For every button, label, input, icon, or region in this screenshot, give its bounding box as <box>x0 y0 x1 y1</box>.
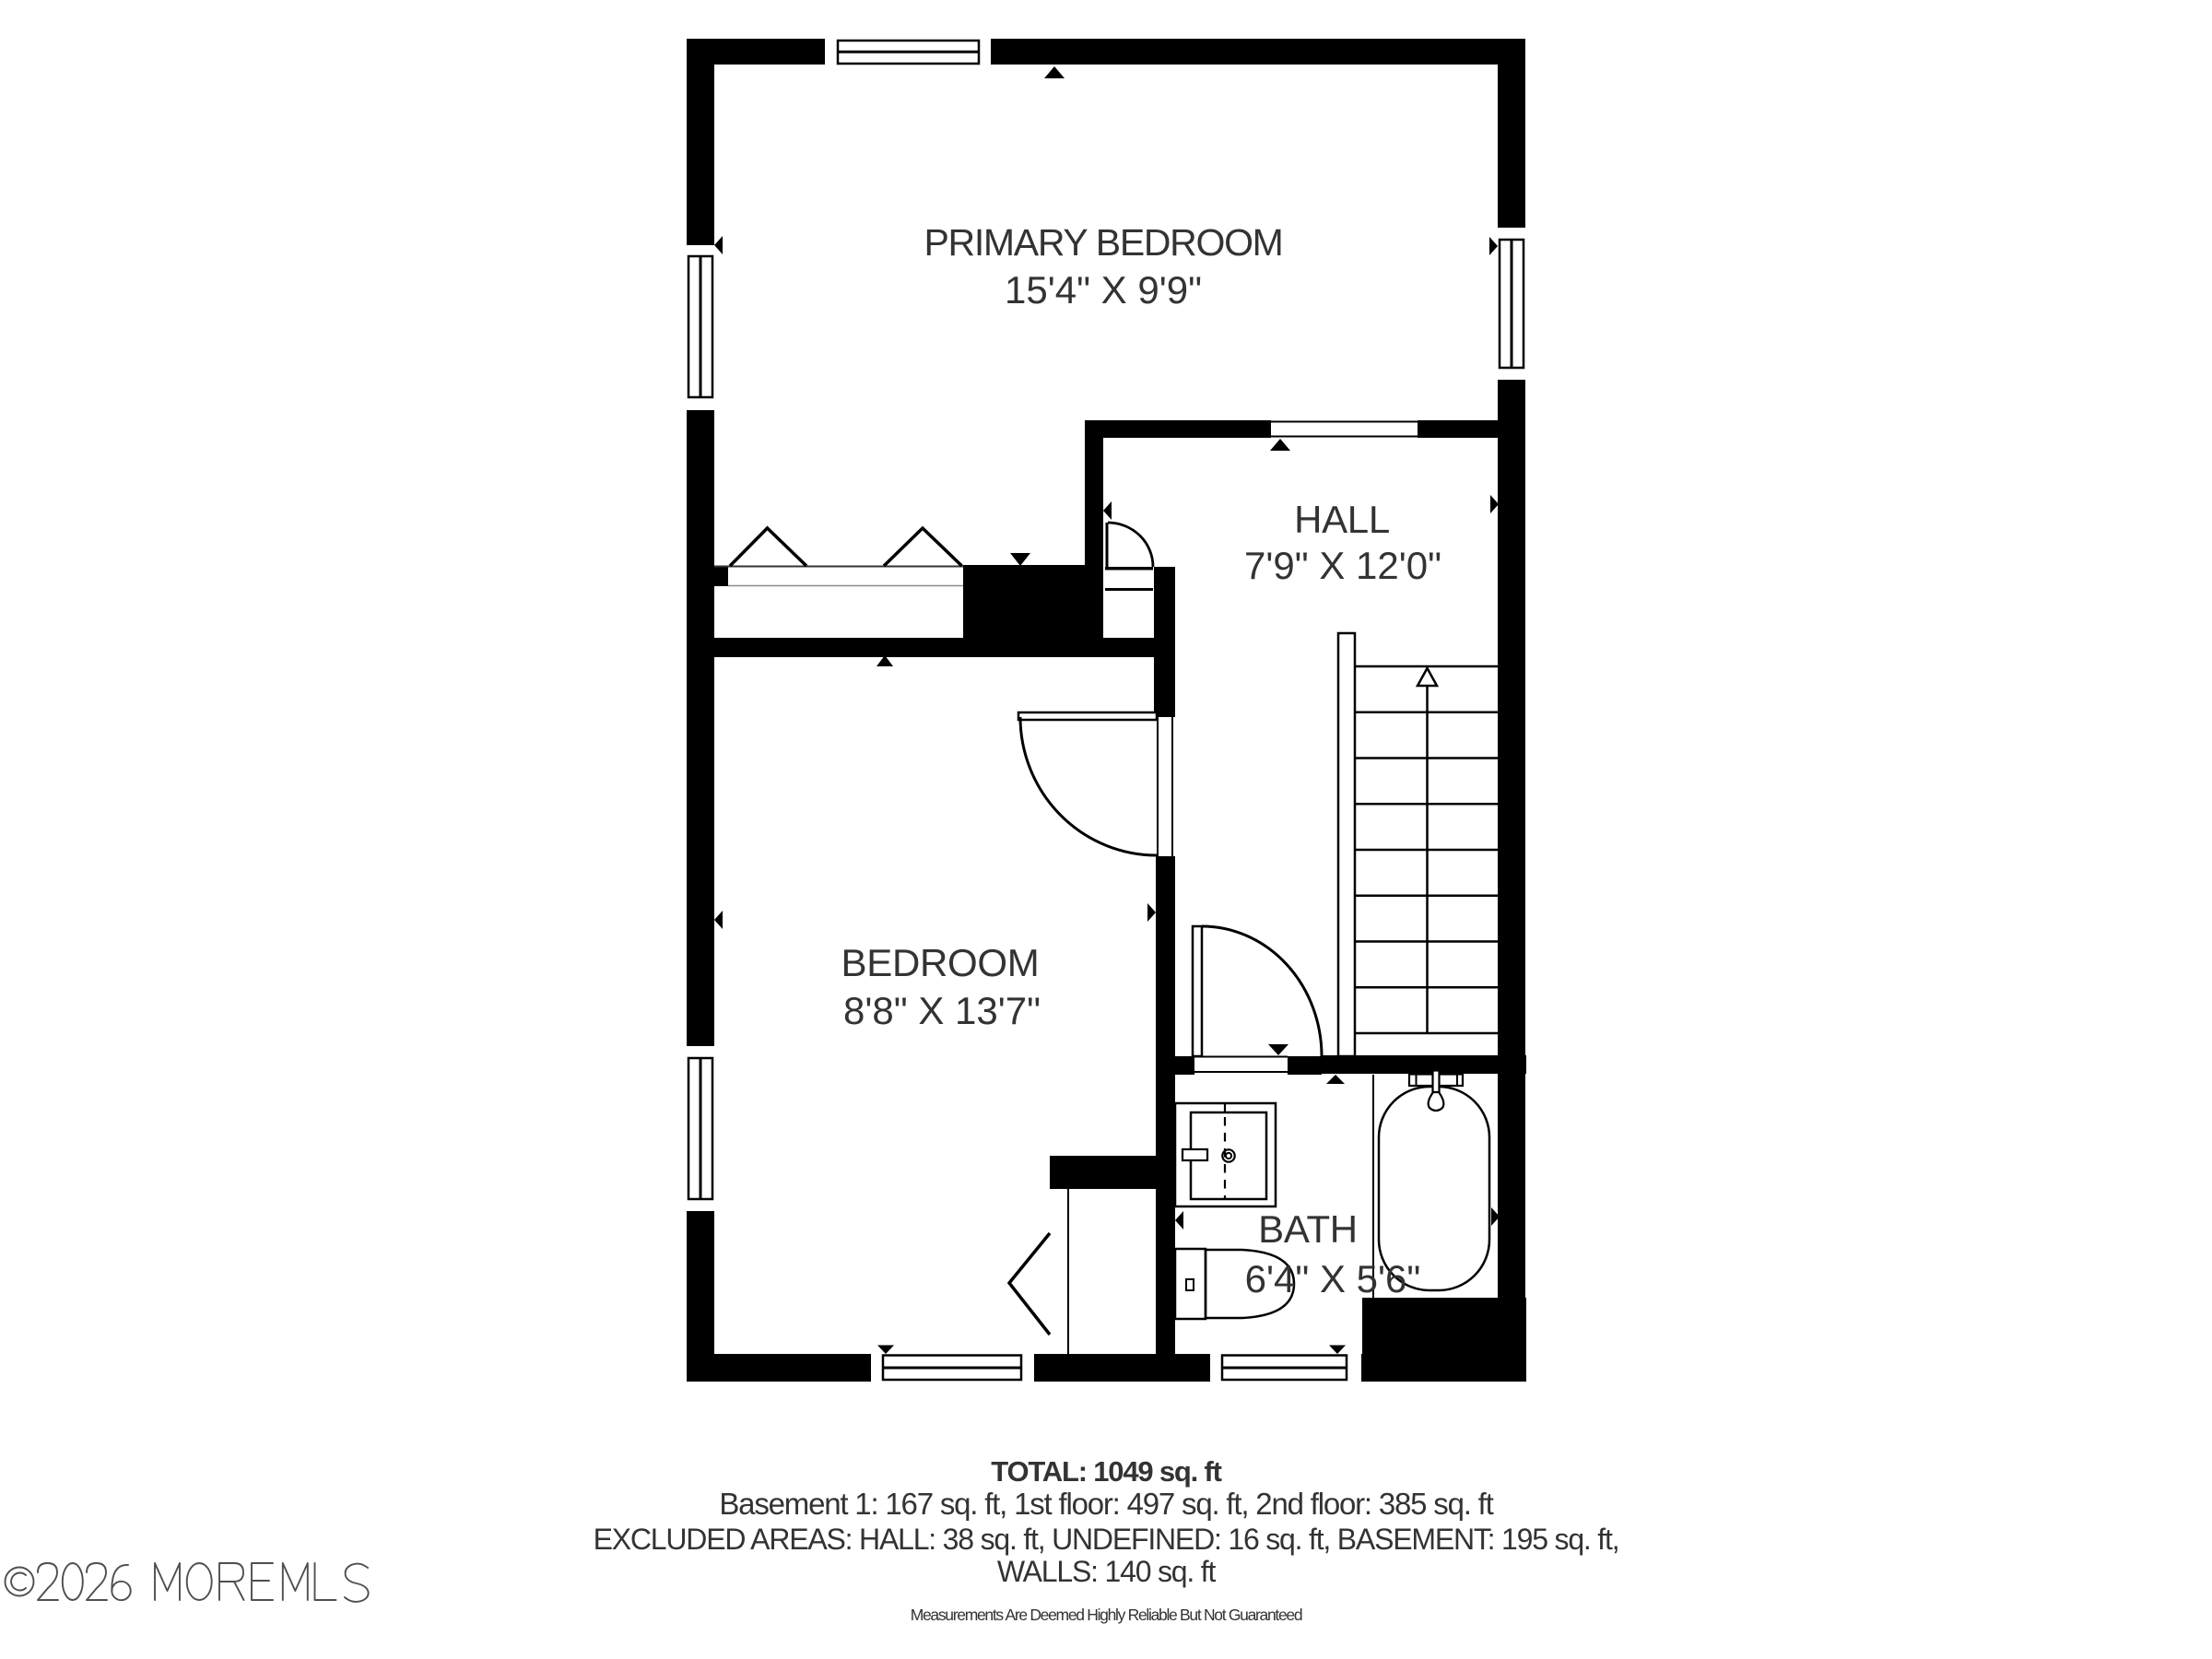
svg-text:Measurements Are Deemed Highly: Measurements Are Deemed Highly Reliable … <box>911 1606 1302 1624</box>
svg-text:7'9" X 12'0": 7'9" X 12'0" <box>1244 544 1441 587</box>
svg-text:Basement 1: 167 sq. ft, 1st fl: Basement 1: 167 sq. ft, 1st floor: 497 s… <box>719 1487 1493 1521</box>
svg-text:TOTAL: 1049 sq. ft: TOTAL: 1049 sq. ft <box>991 1455 1221 1488</box>
svg-text:PRIMARY BEDROOM: PRIMARY BEDROOM <box>924 221 1282 264</box>
svg-text:EXCLUDED AREAS: HALL: 38 sq. f: EXCLUDED AREAS: HALL: 38 sq. ft, UNDEFIN… <box>594 1523 1619 1556</box>
svg-text:15'4" X 9'9": 15'4" X 9'9" <box>1005 268 1202 312</box>
svg-text:8'8" X 13'7": 8'8" X 13'7" <box>843 989 1041 1032</box>
svg-text:WALLS: 140 sq. ft: WALLS: 140 sq. ft <box>997 1555 1217 1588</box>
svg-text:HALL: HALL <box>1294 498 1390 541</box>
svg-text:BEDROOM: BEDROOM <box>841 941 1040 984</box>
svg-text:6'4" X 5'6": 6'4" X 5'6" <box>1245 1257 1421 1300</box>
svg-text:BATH: BATH <box>1258 1207 1358 1251</box>
